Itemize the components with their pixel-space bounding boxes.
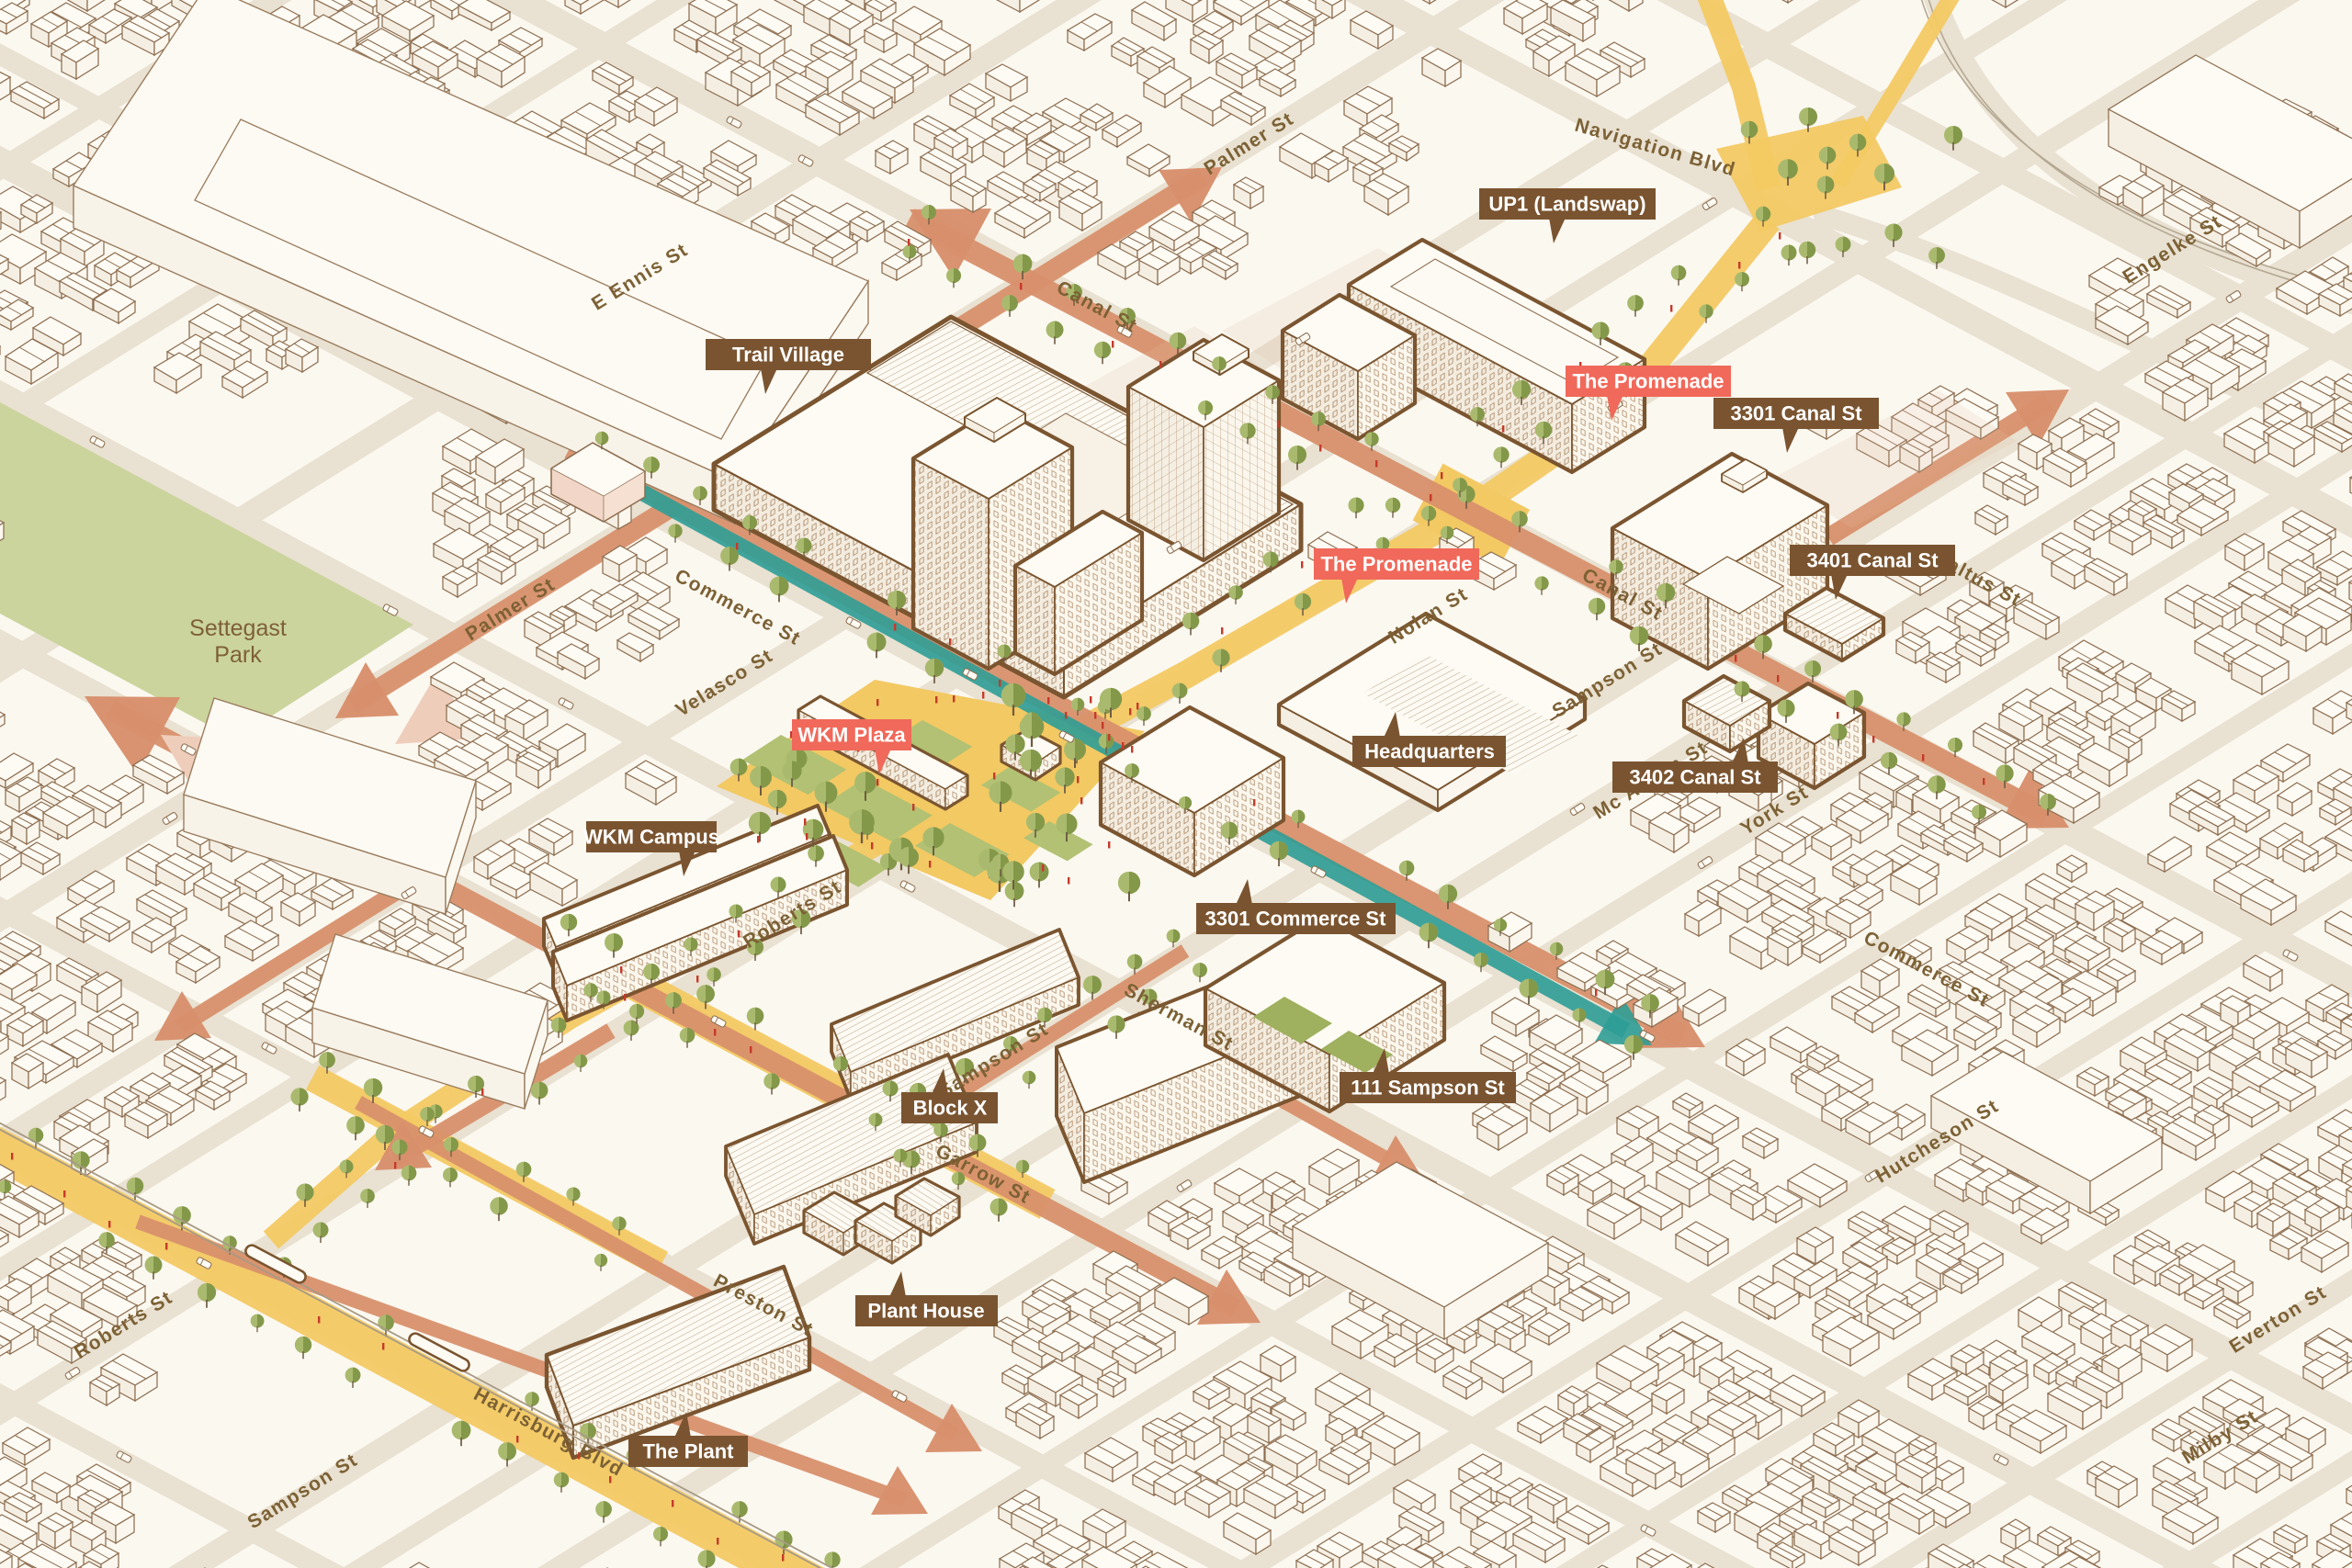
svg-text:Plant House: Plant House <box>867 1300 984 1323</box>
svg-text:Trail Village: Trail Village <box>732 344 844 367</box>
svg-text:3301 Canal St: 3301 Canal St <box>1730 402 1862 425</box>
svg-text:The Promenade: The Promenade <box>1320 553 1472 576</box>
svg-text:Block X: Block X <box>913 1097 988 1120</box>
svg-text:3401 Canal St: 3401 Canal St <box>1806 549 1939 572</box>
svg-text:Headquarters: Headquarters <box>1364 740 1495 763</box>
svg-text:UP1 (Landswap): UP1 (Landswap) <box>1488 193 1645 216</box>
svg-text:The Plant: The Plant <box>642 1440 734 1463</box>
svg-text:111 Sampson St: 111 Sampson St <box>1351 1077 1505 1100</box>
svg-text:The Promenade: The Promenade <box>1572 370 1724 393</box>
svg-text:3402 Canal St: 3402 Canal St <box>1629 766 1761 789</box>
svg-text:WKM Plaza: WKM Plaza <box>797 724 906 747</box>
svg-text:WKM Campus: WKM Campus <box>583 826 719 849</box>
svg-text:3301 Commerce St: 3301 Commerce St <box>1205 908 1387 931</box>
